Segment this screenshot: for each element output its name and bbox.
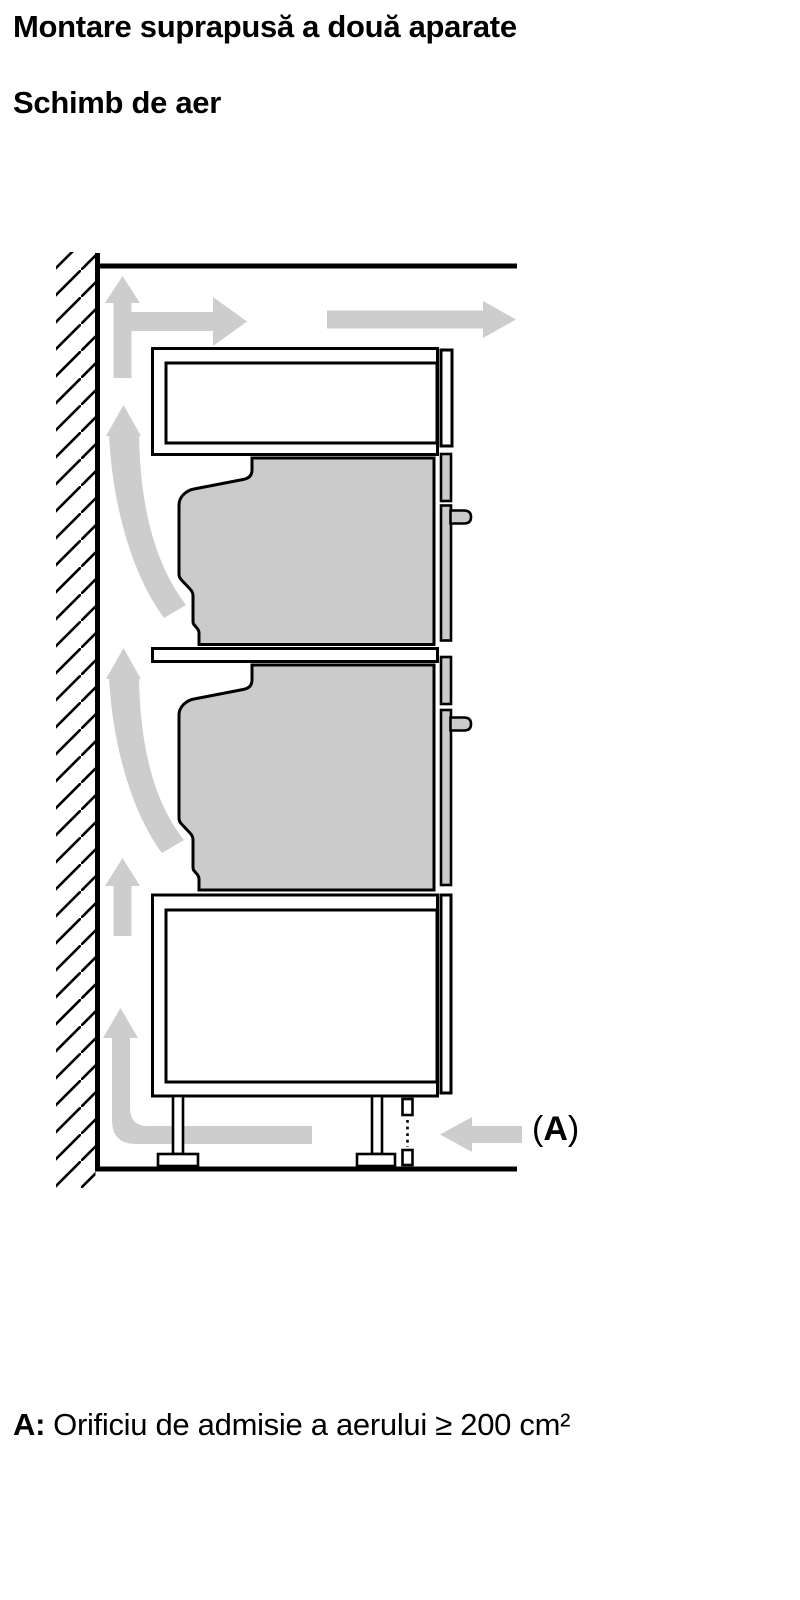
lower-appliance-front-top <box>441 657 451 704</box>
air-inlet-label-open-paren: ( <box>532 1110 543 1148</box>
lower-appliance-front-door <box>441 710 451 885</box>
airflow-right-arrow-top-icon <box>327 301 516 338</box>
air-inlet-vent <box>403 1099 413 1165</box>
upper-appliance-handle <box>451 511 472 524</box>
air-inlet-label: (A) <box>532 1110 579 1149</box>
legend-text: A:Orificiu de admisie a aerului ≥ 200 cm… <box>13 1407 570 1443</box>
shelf-board <box>153 649 438 662</box>
airflow-up-arrow-middle-icon <box>105 858 140 936</box>
upper-appliance-front-door <box>441 506 451 641</box>
base-cabinet <box>153 895 452 1096</box>
cabinet-foot-right <box>357 1096 395 1166</box>
lower-appliance <box>179 657 471 890</box>
airflow-curved-arrow-lower-icon <box>106 648 184 853</box>
lower-appliance-handle <box>451 718 472 731</box>
manual-page: Montare suprapusă a două aparate Schimb … <box>0 0 800 1600</box>
installation-diagram <box>0 0 800 1600</box>
upper-appliance <box>179 454 471 645</box>
air-inlet-label-close-paren: ) <box>568 1110 579 1148</box>
wall-hatching <box>56 252 96 1188</box>
air-inlet-label-letter: A <box>543 1110 568 1148</box>
airflow-right-branch-arrow-icon <box>132 297 248 346</box>
upper-appliance-front-top <box>441 454 451 501</box>
airflow-left-arrow-inlet-icon <box>440 1117 522 1152</box>
legend-value: Orificiu de admisie a aerului ≥ 200 cm² <box>53 1407 570 1442</box>
top-cabinet <box>153 349 453 455</box>
legend-key: A: <box>13 1407 45 1442</box>
